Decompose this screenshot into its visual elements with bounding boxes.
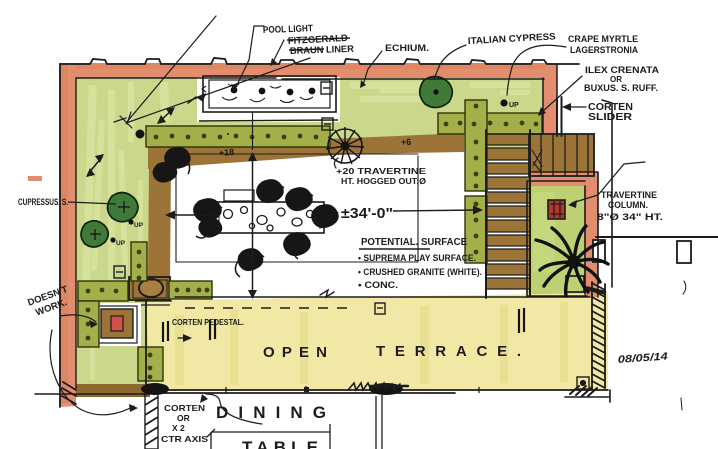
svg-text:ILEX CRENATA: ILEX CRENATA	[585, 65, 659, 76]
svg-text:TRAVERTINE: TRAVERTINE	[601, 190, 657, 200]
svg-text:+18: +18	[218, 147, 234, 158]
svg-text:BUXUS. S. RUFF.: BUXUS. S. RUFF.	[584, 83, 658, 94]
svg-text:CTR AXIS: CTR AXIS	[161, 434, 208, 444]
svg-text:CORTEN: CORTEN	[164, 403, 205, 413]
svg-text:CRAPE MYRTLE: CRAPE MYRTLE	[568, 34, 638, 45]
svg-text:CORTEN PEDESTAL.: CORTEN PEDESTAL.	[172, 317, 244, 327]
svg-text:CUPRESSUS. S.: CUPRESSUS. S.	[18, 197, 68, 208]
svg-text:• SUPREMA PLAY SURFACE.: • SUPREMA PLAY SURFACE.	[358, 253, 476, 263]
svg-text:UP: UP	[134, 222, 144, 229]
svg-text:8"Ø 34" HT.: 8"Ø 34" HT.	[597, 212, 663, 222]
svg-text:ECHIUM.: ECHIUM.	[385, 43, 429, 54]
svg-text:• CRUSHED GRANITE (WHITE).: • CRUSHED GRANITE (WHITE).	[358, 267, 482, 277]
svg-text:POTENTIAL. SURFACE: POTENTIAL. SURFACE	[361, 237, 467, 248]
svg-text:HT. HOGGED OUT:Ø: HT. HOGGED OUT:Ø	[341, 176, 426, 186]
svg-text:±34'-0": ±34'-0"	[341, 205, 393, 222]
svg-text:LAGERSTRONIA: LAGERSTRONIA	[570, 45, 638, 56]
svg-text:OR: OR	[177, 413, 190, 423]
svg-text:UP: UP	[509, 102, 519, 109]
svg-text:• CONC.: • CONC.	[358, 280, 398, 290]
svg-text:+6: +6	[401, 137, 411, 147]
svg-text:UP: UP	[116, 240, 126, 247]
svg-text:X 2: X 2	[172, 423, 185, 433]
svg-text:SLIDER: SLIDER	[588, 112, 633, 123]
svg-text:COLUMN.: COLUMN.	[608, 200, 648, 210]
svg-text:+20 TRAVERTINE: +20 TRAVERTINE	[336, 166, 426, 176]
